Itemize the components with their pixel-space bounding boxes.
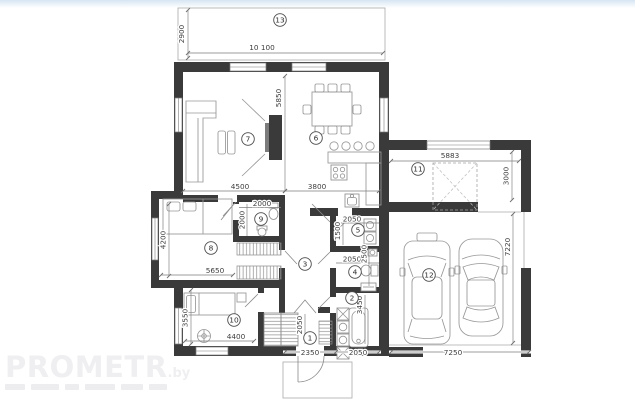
dim-wc9-height: 2000 [238, 210, 247, 229]
room-number-5: 5 [352, 224, 365, 237]
kitchen-sink [345, 194, 359, 207]
dim-bedroom8-width: 5650 [206, 266, 225, 275]
cabinet [319, 321, 332, 344]
watermark-brand: PROMETR [5, 350, 168, 384]
dim-bathroom-width: 2050 [349, 348, 368, 357]
dim-garage-depth: 7220 [503, 237, 512, 256]
dim-hall-width: 2350 [301, 348, 320, 357]
svg-text:10: 10 [229, 316, 239, 325]
wall-carport-top-right [490, 140, 531, 150]
dim-bedroom10-height: 3550 [181, 308, 190, 327]
window-bedroom8-west [152, 218, 158, 260]
room-number-2: 2 [346, 292, 359, 305]
pillow [183, 202, 196, 211]
living-room-furniture [186, 99, 269, 182]
dim-living-width: 4500 [231, 182, 250, 191]
stove [331, 165, 347, 180]
kitchen-counter-side [366, 163, 381, 205]
room-number-8: 8 [205, 242, 218, 255]
sink [257, 226, 267, 236]
svg-text:13: 13 [275, 16, 285, 25]
room-number-11: 11 [412, 163, 425, 176]
armchair [228, 131, 236, 154]
floor-plan-svg: 10 100 2900 5850 4500 3800 5883 3000 725… [0, 0, 635, 403]
car-sedan [455, 239, 507, 336]
svg-text:9: 9 [259, 215, 264, 224]
svg-text:6: 6 [314, 134, 319, 143]
room-number-4: 4 [349, 266, 362, 279]
dim-wc4-height: 2500 [360, 244, 369, 263]
porch [283, 362, 352, 398]
svg-text:11: 11 [413, 165, 423, 174]
svg-text:12: 12 [424, 271, 433, 280]
dim-pantry-width: 2050 [343, 215, 362, 224]
toilet [361, 265, 378, 276]
hall1-furniture [319, 321, 332, 344]
garage-cars [400, 233, 507, 344]
window-living-west [175, 98, 182, 132]
room-number-13: 13 [274, 14, 287, 27]
wall-carport-bottom [389, 202, 478, 212]
dim-dining-width: 3800 [308, 182, 327, 191]
svg-text:7: 7 [246, 135, 251, 144]
dim-carport-width: 5883 [441, 151, 460, 160]
bed [184, 293, 235, 315]
room-number-12: 12 [423, 269, 436, 282]
bar-stool [330, 142, 338, 150]
dining-furniture [303, 84, 361, 134]
porch-outline [283, 362, 352, 398]
dim-garage-width: 7250 [444, 348, 463, 357]
kitchen-counter [328, 152, 381, 163]
car-suv [400, 233, 454, 344]
sink [368, 249, 377, 256]
room-number-3: 3 [299, 258, 312, 271]
wall-room8-south [151, 280, 283, 288]
window-bedroom10-south [196, 347, 228, 355]
dryer [364, 232, 376, 244]
watermark: PROMETR.by [5, 352, 190, 390]
bar-stool [354, 142, 362, 150]
room-number-9: 9 [255, 213, 268, 226]
watermark-suffix: .by [168, 366, 191, 381]
bar-stool [342, 142, 350, 150]
garage-boundary [389, 212, 524, 345]
wall-garage-right [521, 268, 531, 357]
dim-terrace-width: 10 100 [249, 43, 275, 52]
svg-text:3: 3 [303, 260, 308, 269]
wall-wc9-bottom [233, 236, 285, 242]
wall-carport-top-left [389, 140, 427, 150]
staircase [264, 313, 298, 346]
watermark-tagline [5, 384, 190, 390]
kitchen-fixtures [328, 142, 381, 207]
dim-terrace-height: 2900 [177, 24, 186, 43]
room-number-10: 10 [228, 314, 241, 327]
washer [364, 219, 376, 231]
dining-table [312, 92, 352, 126]
room-number-6: 6 [310, 132, 323, 145]
page-top-tint [0, 0, 635, 8]
dim-bedroom10-width: 4400 [227, 332, 246, 341]
bar-stool [366, 142, 374, 150]
armchair [218, 131, 226, 154]
wall-top [174, 62, 389, 72]
svg-text:5: 5 [356, 226, 361, 235]
dim-pantry-height: 1500 [333, 221, 342, 240]
window-dining-terrace [292, 63, 326, 71]
dim-wc9-width: 2000 [253, 199, 272, 208]
dim-hall-height: 2050 [295, 315, 304, 334]
window-carport-north [427, 141, 490, 149]
window-living-terrace [230, 63, 266, 71]
double-bed [163, 199, 232, 234]
dim-carport-depth: 3000 [502, 166, 511, 185]
wall-carport-right [521, 150, 531, 212]
svg-text:1: 1 [308, 334, 313, 343]
svg-text:4: 4 [353, 268, 358, 277]
room-number-7: 7 [242, 133, 255, 146]
svg-text:8: 8 [209, 244, 214, 253]
wall-tv-block [269, 115, 282, 160]
svg-text:2: 2 [350, 294, 355, 303]
window-dining-east [380, 98, 388, 132]
wardrobe [237, 243, 281, 255]
dim-living-height: 5850 [274, 88, 283, 107]
wardrobe [237, 266, 281, 279]
entrance-door [298, 356, 324, 382]
nightstand [237, 293, 246, 302]
plant [198, 330, 211, 343]
dim-bedroom8-height: 4200 [159, 230, 168, 249]
boiler [361, 283, 376, 291]
floor-plan: 10 100 2900 5850 4500 3800 5883 3000 725… [0, 0, 635, 403]
room-number-1: 1 [304, 332, 317, 345]
